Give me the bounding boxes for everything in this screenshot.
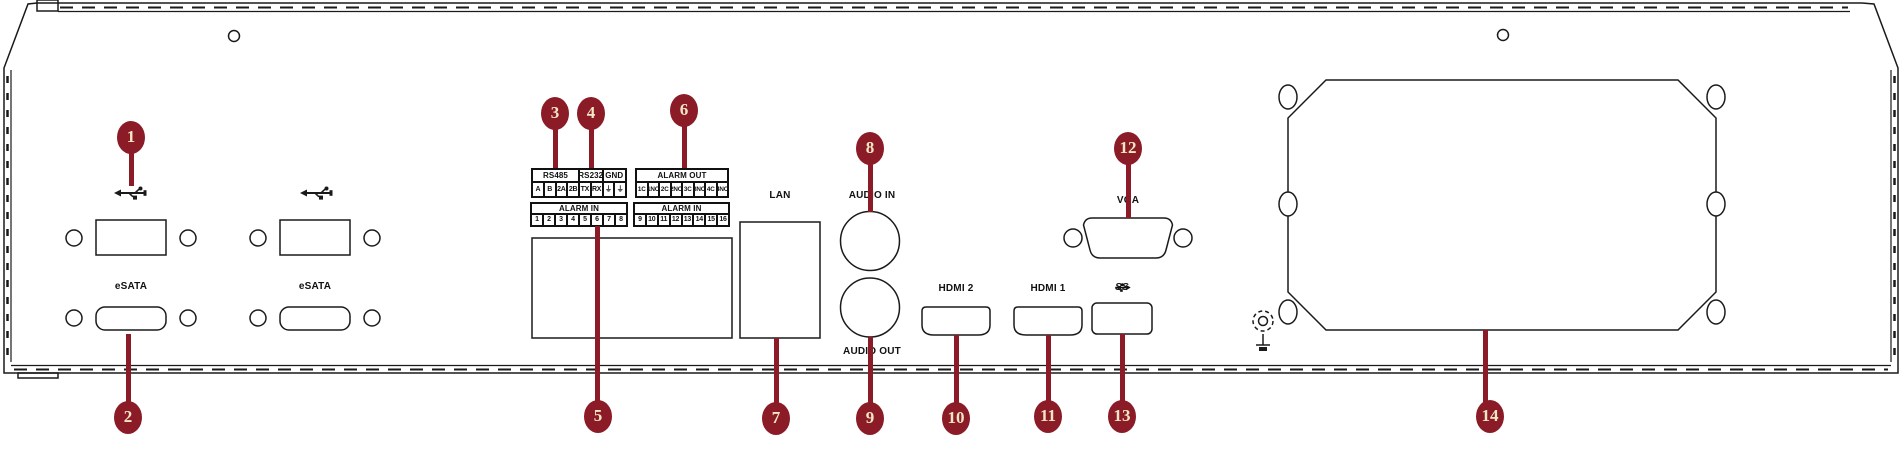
bottom-edge-tab [18,373,58,378]
usb-port-1 [66,220,196,255]
terminal-cell: 16 [717,214,729,227]
terminal-cell: 2C [659,182,671,197]
esata-port-1 [66,307,196,330]
lan-port [740,222,820,338]
terminal-cell: 2 [543,214,555,227]
vga-port [1064,218,1192,258]
terminal-cell: 15 [705,214,717,227]
terminal-cell: RX [591,182,603,197]
callout-stem-13 [1120,334,1125,403]
callout-2: 2 [114,401,142,434]
hdmi-1-port [1014,307,1082,335]
callout-stem-1 [129,150,134,186]
hdmi-1-label: HDMI 1 [1030,283,1065,294]
usb3-ss-icon: SS [1115,282,1129,293]
screw-hole-top-right [1498,30,1509,41]
top-edge-tab [37,0,58,11]
usb3-port [1092,303,1152,334]
terminal-cell: 10 [646,214,658,227]
alarm-out-block: ALARM OUT1C1NO2C2NO3C3NO4C4NO [635,168,729,198]
hdmi-2-port [922,307,990,335]
callout-11: 11 [1034,400,1062,433]
terminal-cell: 2B [567,182,579,197]
terminal-cell: B [544,182,556,197]
callout-stem-14 [1483,330,1488,403]
terminal-header: ALARM IN [634,203,729,214]
blank-slot-cover [532,238,732,338]
usb-port-2 [250,220,380,255]
terminal-cell: 1NO [648,182,660,197]
callout-stem-6 [682,123,687,168]
chassis-outline [4,0,1898,378]
callout-13: 13 [1108,400,1136,433]
callout-stem-4 [589,126,594,168]
terminal-cell: 3 [555,214,567,227]
terminal-cell: 7 [603,214,615,227]
callout-10: 10 [942,402,970,435]
terminal-header: ALARM IN [531,203,627,214]
terminal-cell: ⏚ [614,182,626,197]
terminal-cell: 5 [579,214,591,227]
callout-stem-3 [553,126,558,168]
callout-14: 14 [1476,400,1504,433]
callout-stem-2 [126,334,131,404]
terminal-cell: 4C [705,182,717,197]
callout-stem-9 [868,337,873,405]
terminal-cell: 4NO [717,182,729,197]
usb-icon [300,187,333,200]
terminal-cell: TX [579,182,591,197]
alarm-in-block-2: ALARM IN910111213141516 [633,202,730,227]
panel-line-art [0,0,1902,450]
terminal-cell: 4 [567,214,579,227]
callout-stem-12 [1126,161,1131,218]
usb-trident-icon [1115,282,1131,293]
audio-out-jack [841,278,900,337]
callout-1: 1 [117,121,145,154]
callout-stem-7 [774,338,779,405]
callout-8: 8 [856,132,884,165]
terminal-cell: 1 [531,214,543,227]
usb-icon [114,187,147,200]
terminal-cell: 2NO [671,182,683,197]
alarm-in-block-1: ALARM IN12345678 [530,202,628,227]
esata-port-2 [250,307,380,330]
callout-3: 3 [541,97,569,130]
rear-panel-diagram: RS485RS232GNDAB2A2BTXRX⏚⏚ ALARM OUT1C1NO… [0,0,1902,450]
terminal-cell: 3C [682,182,694,197]
terminal-cell: 9 [634,214,646,227]
terminal-cell: 14 [693,214,705,227]
hdmi-2-label: HDMI 2 [938,283,973,294]
terminal-cell: 13 [682,214,694,227]
terminal-cell: 11 [658,214,670,227]
terminal-cell: A [532,182,544,197]
callout-6: 6 [670,94,698,127]
screw-hole-top-left [229,31,240,42]
ground-symbol [1253,311,1273,351]
audio-in-jack [841,212,900,271]
terminal-cell: ⏚ [603,182,615,197]
callout-5: 5 [584,400,612,433]
terminal-cell: 12 [670,214,682,227]
callout-4: 4 [577,97,605,130]
callout-stem-8 [868,161,873,212]
terminal-cell: 2A [556,182,568,197]
lan-label: LAN [769,190,790,201]
serial-terminal-block: RS485RS232GNDAB2A2BTXRX⏚⏚ [531,168,627,198]
esata-label-2: eSATA [299,281,331,292]
terminal-header: GND [603,169,627,182]
terminal-cell: 3NO [694,182,706,197]
callout-7: 7 [762,402,790,435]
terminal-cell: 8 [615,214,627,227]
terminal-header: RS485 [532,169,579,182]
terminal-cell: 6 [591,214,603,227]
esata-label-1: eSATA [115,281,147,292]
terminal-header: ALARM OUT [636,169,728,182]
callout-9: 9 [856,402,884,435]
callout-stem-11 [1046,335,1051,403]
terminal-header: RS232 [579,169,603,182]
callout-stem-10 [954,335,959,405]
callout-stem-5 [595,226,600,403]
callout-12: 12 [1114,132,1142,165]
terminal-cell: 1C [636,182,648,197]
power-blank-plate [1279,80,1725,330]
